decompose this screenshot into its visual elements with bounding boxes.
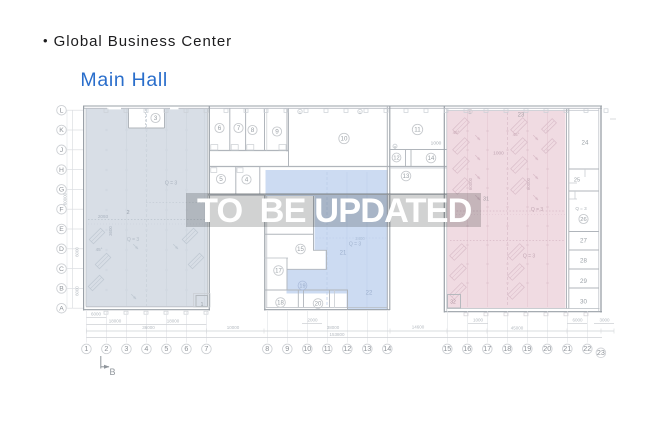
- svg-text:22: 22: [583, 344, 591, 353]
- svg-text:Q = 3: Q = 3: [127, 237, 140, 243]
- svg-text:18000: 18000: [109, 319, 122, 324]
- svg-text:6: 6: [218, 125, 222, 132]
- svg-text:25: 25: [574, 178, 580, 184]
- svg-text:45000: 45000: [511, 326, 524, 331]
- svg-text:6000: 6000: [75, 286, 80, 296]
- svg-text:3000: 3000: [599, 318, 610, 323]
- svg-text:45°: 45°: [453, 130, 460, 135]
- svg-text:24: 24: [582, 140, 589, 147]
- svg-text:18000: 18000: [167, 319, 180, 324]
- svg-text:30: 30: [580, 299, 587, 306]
- svg-text:60000: 60000: [63, 192, 68, 205]
- svg-text:5: 5: [164, 344, 168, 353]
- svg-text:60000: 60000: [468, 177, 473, 190]
- svg-text:C: C: [59, 266, 64, 273]
- svg-text:21: 21: [563, 344, 571, 353]
- svg-text:28: 28: [580, 258, 587, 265]
- svg-text:2000: 2000: [307, 318, 318, 323]
- svg-text:6000: 6000: [572, 318, 583, 323]
- svg-text:8: 8: [394, 145, 396, 149]
- svg-text:6000: 6000: [91, 312, 102, 317]
- svg-text:2: 2: [126, 210, 129, 216]
- svg-text:1000: 1000: [431, 141, 442, 147]
- svg-text:8: 8: [265, 344, 269, 353]
- svg-text:29: 29: [580, 278, 587, 285]
- svg-text:4: 4: [144, 344, 148, 353]
- svg-text:1: 1: [84, 344, 88, 353]
- svg-text:12: 12: [393, 156, 399, 162]
- svg-text:26: 26: [580, 217, 586, 223]
- svg-text:10000: 10000: [227, 325, 240, 330]
- svg-text:D: D: [59, 246, 64, 253]
- svg-text:13: 13: [403, 174, 410, 180]
- svg-text:12: 12: [343, 344, 351, 353]
- svg-text:1: 1: [469, 111, 471, 115]
- svg-text:3: 3: [124, 344, 128, 353]
- svg-text:14: 14: [383, 344, 391, 353]
- svg-text:23: 23: [518, 113, 525, 119]
- svg-text:21: 21: [340, 251, 347, 257]
- svg-text:22: 22: [366, 291, 373, 297]
- svg-text:27: 27: [580, 238, 587, 245]
- svg-text:1: 1: [201, 302, 204, 308]
- svg-text:H: H: [59, 167, 64, 174]
- svg-text:2093: 2093: [98, 214, 109, 219]
- svg-text:17: 17: [483, 344, 491, 353]
- svg-text:1000: 1000: [473, 318, 484, 323]
- svg-text:Q = 3: Q = 3: [523, 254, 536, 260]
- svg-text:32: 32: [450, 300, 456, 306]
- svg-text:45°: 45°: [513, 132, 520, 137]
- svg-text:11: 11: [414, 127, 421, 134]
- svg-text:20: 20: [315, 302, 322, 308]
- svg-text:23: 23: [597, 348, 605, 357]
- svg-text:K: K: [59, 127, 64, 134]
- svg-text:6000: 6000: [75, 247, 80, 257]
- svg-text:36000: 36000: [142, 325, 155, 330]
- svg-text:E: E: [59, 226, 64, 233]
- svg-text:Q = 3: Q = 3: [349, 242, 362, 248]
- svg-text:31: 31: [483, 197, 489, 203]
- svg-text:L: L: [60, 107, 64, 114]
- svg-text:8: 8: [251, 127, 255, 134]
- svg-text:5: 5: [219, 176, 223, 183]
- svg-text:1: 1: [299, 111, 301, 115]
- svg-text:7: 7: [237, 125, 241, 132]
- svg-text:3: 3: [154, 115, 158, 122]
- svg-text:J: J: [60, 147, 63, 154]
- svg-text:2: 2: [104, 344, 108, 353]
- svg-text:16: 16: [463, 344, 471, 353]
- svg-text:G: G: [59, 187, 64, 194]
- svg-text:F: F: [59, 206, 63, 213]
- svg-text:153800: 153800: [329, 332, 345, 337]
- svg-text:6: 6: [184, 344, 188, 353]
- svg-text:9: 9: [285, 344, 289, 353]
- svg-text:14600: 14600: [412, 325, 425, 330]
- svg-text:9: 9: [275, 129, 279, 136]
- svg-text:B: B: [59, 286, 64, 293]
- svg-text:14: 14: [428, 156, 435, 162]
- svg-text:13: 13: [363, 344, 371, 353]
- svg-text:11: 11: [324, 344, 331, 353]
- svg-text:B: B: [109, 367, 115, 377]
- svg-text:10: 10: [341, 136, 348, 143]
- svg-text:18: 18: [503, 344, 511, 353]
- svg-text:38000: 38000: [327, 325, 340, 330]
- svg-text:20: 20: [543, 344, 551, 353]
- svg-text:1000: 1000: [493, 151, 504, 157]
- svg-text:18: 18: [277, 301, 284, 307]
- svg-text:19: 19: [299, 284, 305, 290]
- svg-text:10: 10: [303, 344, 311, 353]
- svg-text:2400: 2400: [355, 236, 365, 241]
- svg-text:19: 19: [523, 344, 531, 353]
- svg-text:15: 15: [297, 247, 304, 253]
- svg-text:Q = 3: Q = 3: [165, 181, 178, 187]
- svg-text:1: 1: [359, 111, 361, 115]
- svg-text:17: 17: [275, 269, 282, 275]
- svg-text:7: 7: [204, 344, 208, 353]
- svg-text:Q = 3: Q = 3: [575, 206, 587, 211]
- svg-text:3600: 3600: [108, 226, 113, 236]
- svg-text:45°: 45°: [96, 247, 103, 252]
- svg-text:A: A: [59, 305, 64, 312]
- svg-text:4: 4: [245, 177, 249, 184]
- svg-text:15: 15: [443, 344, 451, 353]
- svg-text:60000: 60000: [526, 177, 531, 190]
- svg-text:Q = 3: Q = 3: [531, 207, 544, 213]
